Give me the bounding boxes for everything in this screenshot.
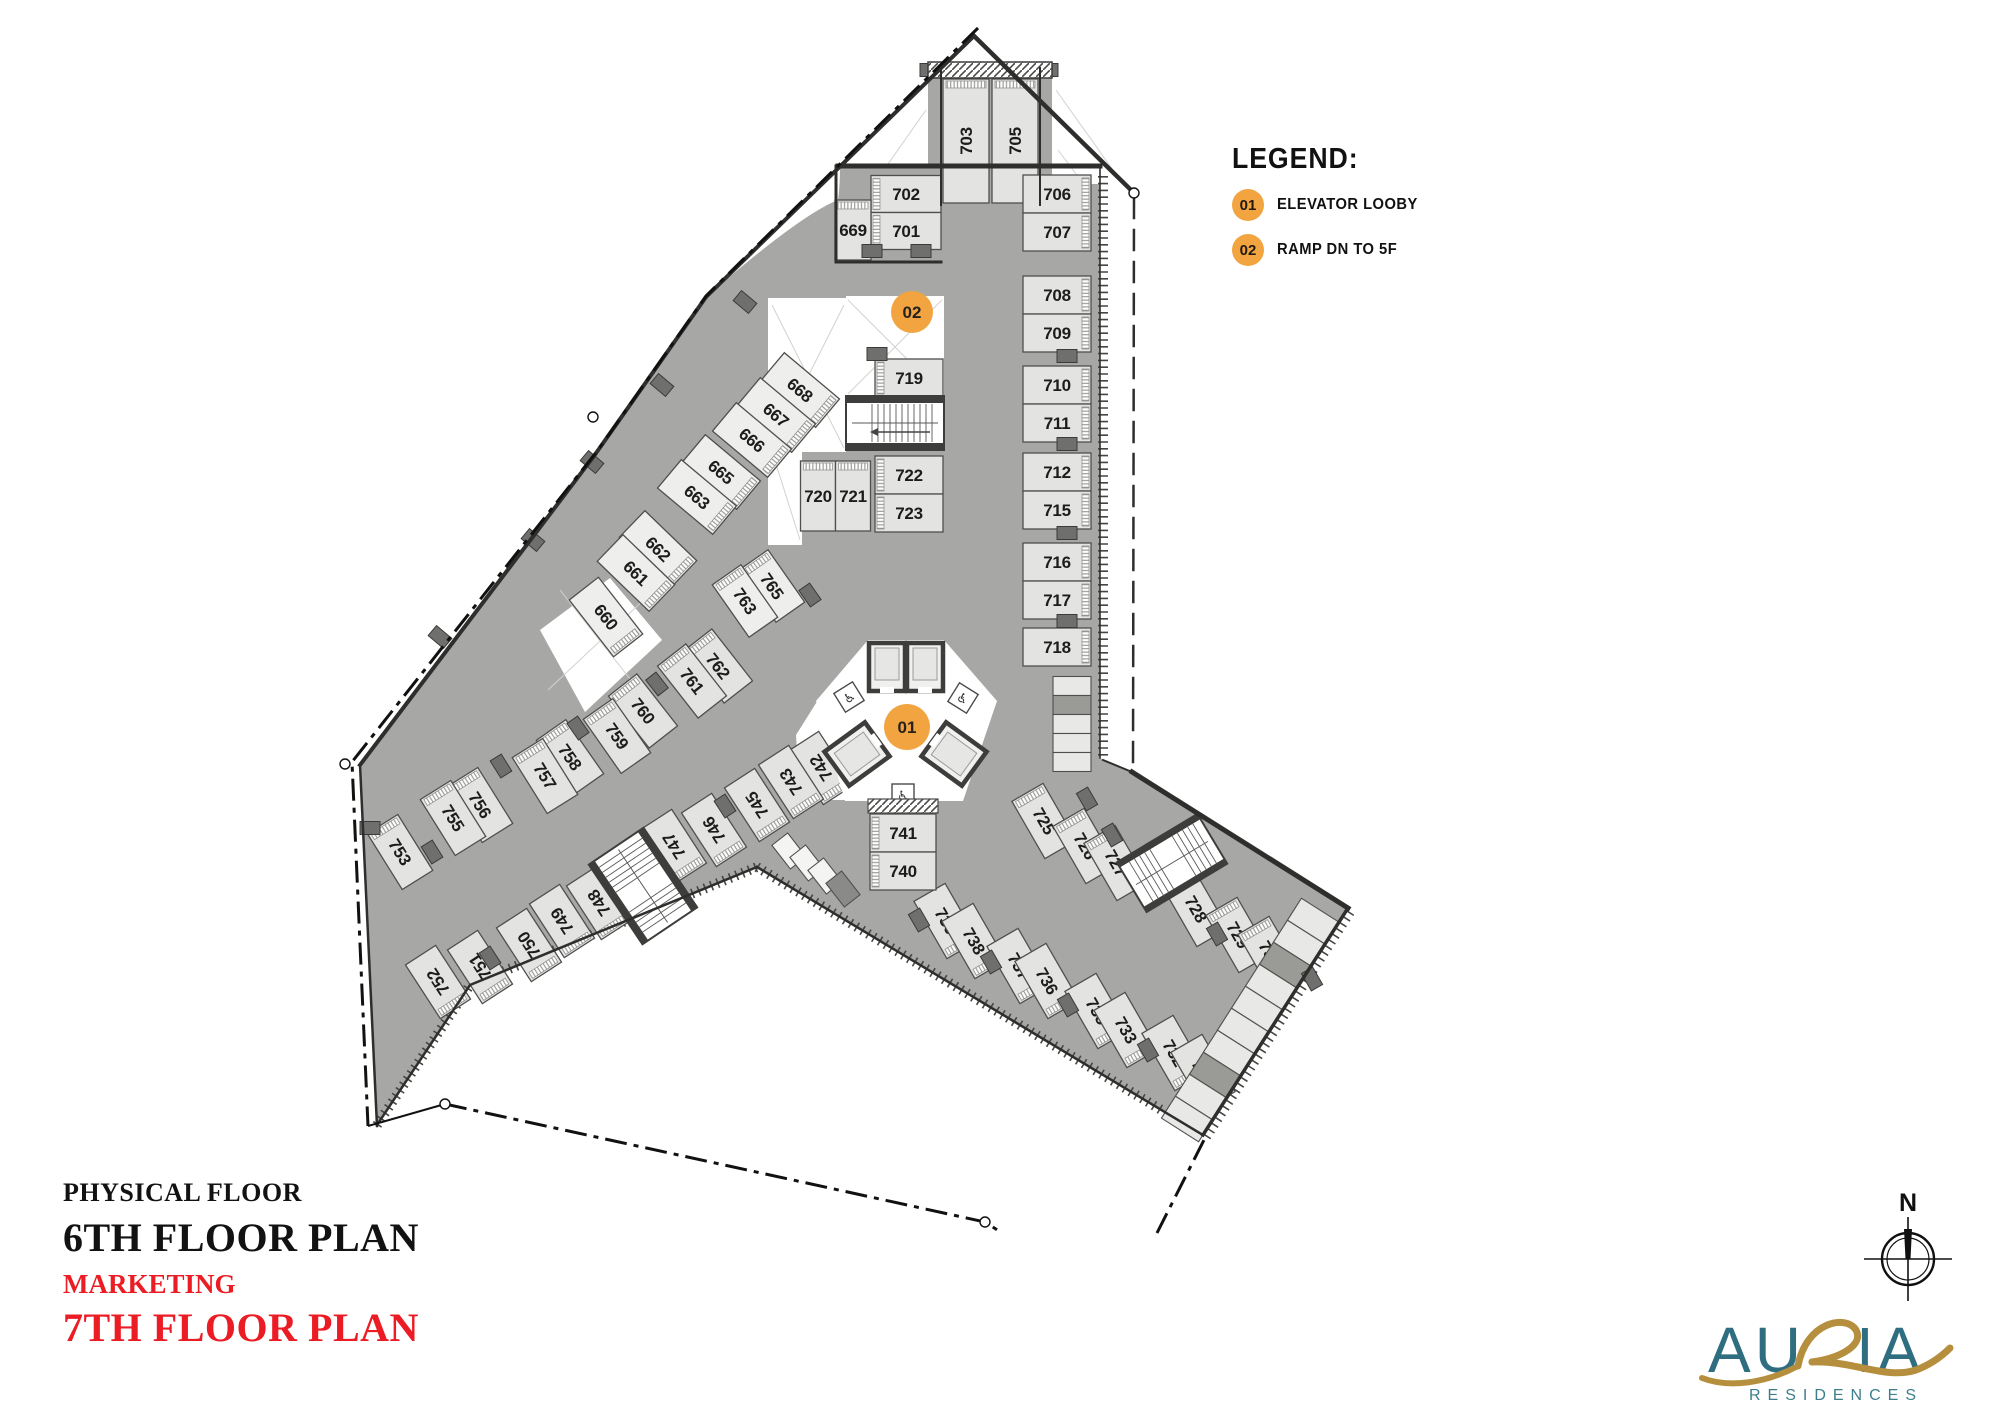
legend-item-elevator-lobby: 01 ELEVATOR LOOBY (1232, 189, 1425, 221)
stall-number: 721 (839, 487, 866, 506)
stall-number: 702 (892, 185, 919, 204)
parking-stall-703: 703 (943, 79, 989, 203)
compass-north-label: N (1899, 1189, 1917, 1217)
storage-locker (1053, 753, 1091, 772)
legend-label-01: ELEVATOR LOOBY (1277, 196, 1418, 214)
parking-stall-716: 716 (1023, 543, 1091, 581)
stall-number: 720 (804, 487, 831, 506)
stall-number: 707 (1043, 223, 1070, 242)
marketing-floor-plan-title: 7TH FLOOR PLAN (63, 1304, 419, 1351)
logo-subtext: RESIDENCES (1749, 1387, 1923, 1404)
marketing-label: MARKETING (63, 1269, 419, 1300)
physical-floor-plan-title: 6TH FLOOR PLAN (63, 1214, 419, 1261)
parking-stall-710: 710 (1023, 366, 1091, 404)
stall-number: 705 (1006, 127, 1025, 154)
legend: LEGEND: 01 ELEVATOR LOOBY 02 RAMP DN TO … (1232, 143, 1425, 266)
stall-number: 710 (1043, 376, 1070, 395)
parking-stall-715: 715 (1023, 491, 1091, 529)
column (1057, 350, 1077, 363)
parking-stall-707: 707 (1023, 213, 1091, 251)
column (911, 245, 931, 258)
stall-number: 711 (1044, 414, 1071, 433)
parking-stall-702: 702 (871, 176, 941, 213)
stall-number: 669 (839, 221, 866, 240)
stall-number: 712 (1043, 463, 1070, 482)
stall-number: 718 (1043, 638, 1070, 657)
parking-stall-711: 711 (1023, 404, 1091, 442)
auria-logo: AU IA RESIDENCES (1688, 1292, 1988, 1412)
stair-core-north (846, 396, 944, 450)
stall-number: 701 (892, 222, 919, 241)
parking-stall-701: 701 (871, 213, 941, 250)
legend-title: LEGEND: (1232, 143, 1410, 176)
parking-stall-719: 719 (875, 359, 943, 397)
stall-number: 741 (889, 824, 916, 843)
parking-stall-723: 723 (875, 494, 943, 532)
storage-locker (1053, 696, 1091, 715)
svg-text:01: 01 (898, 718, 917, 737)
plan-marker-01: 01 (884, 704, 930, 750)
stall-number: 709 (1043, 324, 1070, 343)
title-block: PHYSICAL FLOOR 6TH FLOOR PLAN MARKETING … (63, 1178, 419, 1351)
column (867, 348, 887, 361)
parking-stall-712: 712 (1023, 453, 1091, 491)
stall-number: 719 (895, 369, 922, 388)
stall-number: 722 (895, 466, 922, 485)
elevator-shaft-top-left (869, 643, 905, 693)
stall-number: 723 (895, 504, 922, 523)
storage-locker (1053, 715, 1091, 734)
parking-stall-740: 740 (870, 852, 936, 890)
svg-text:02: 02 (903, 303, 922, 322)
legend-label-02: RAMP DN TO 5F (1277, 241, 1397, 259)
parking-stall-741: 741 (870, 814, 936, 852)
parking-stall-708: 708 (1023, 276, 1091, 314)
legend-item-ramp: 02 RAMP DN TO 5F (1232, 234, 1425, 266)
compass-needle (1904, 1229, 1912, 1259)
logo-text-left: AU (1708, 1314, 1805, 1386)
column (1057, 615, 1077, 628)
column (428, 626, 452, 649)
parking-stall-706: 706 (1023, 175, 1091, 213)
parking-stall-709: 709 (1023, 314, 1091, 352)
elevator-shaft-top-right (907, 643, 943, 693)
parking-stall-720: 720 (801, 461, 836, 531)
legend-badge-02: 02 (1232, 234, 1264, 266)
stall-number: 708 (1043, 286, 1070, 305)
column (1057, 438, 1077, 451)
storage-locker (1053, 677, 1091, 696)
stall-number: 706 (1043, 185, 1070, 204)
stall-number: 715 (1043, 501, 1070, 520)
column (1057, 527, 1077, 540)
legend-badge-01: 01 (1232, 189, 1264, 221)
floor-plan-page: 7037057027016697067077087097107117127157… (0, 0, 2000, 1414)
parking-stall-718: 718 (1023, 628, 1091, 666)
parking-stall-722: 722 (875, 456, 943, 494)
parking-stall-717: 717 (1023, 581, 1091, 619)
parking-stall-721: 721 (836, 461, 871, 531)
physical-floor-label: PHYSICAL FLOOR (63, 1178, 419, 1208)
stall-number: 716 (1043, 553, 1070, 572)
stall-number: 740 (889, 862, 916, 881)
stall-number: 717 (1043, 591, 1070, 610)
storage-locker (1053, 734, 1091, 753)
plan-marker-02: 02 (891, 291, 933, 333)
column (862, 245, 882, 258)
stall-number: 703 (957, 127, 976, 154)
